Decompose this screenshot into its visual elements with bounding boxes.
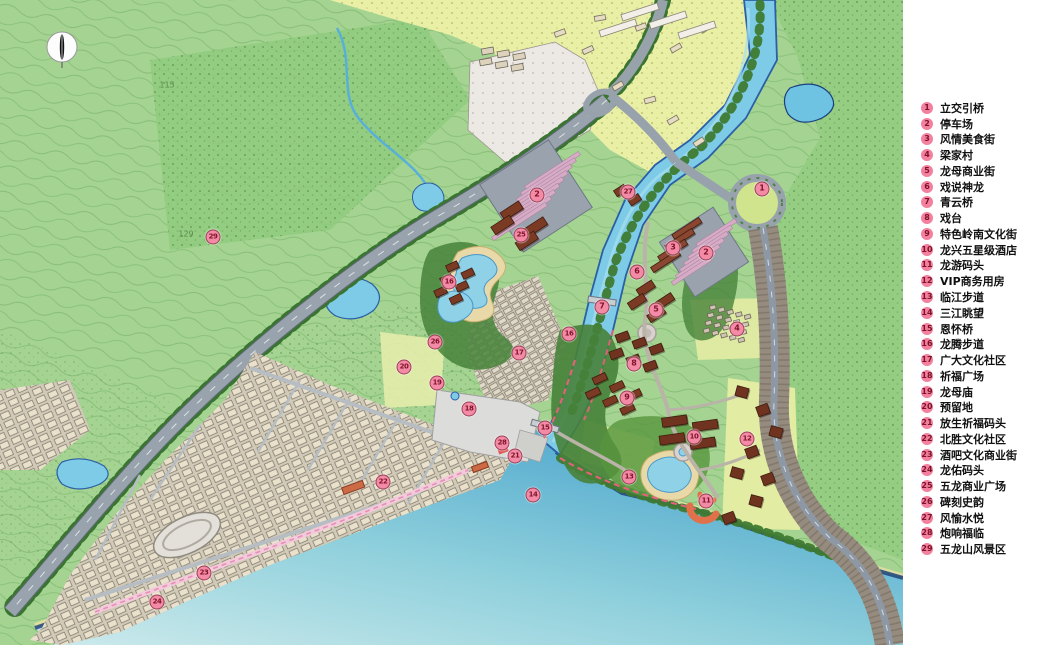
legend-item-number: 14	[921, 307, 933, 319]
map-marker-4: 4	[730, 322, 745, 337]
legend-item: 3风情美食街	[921, 132, 995, 148]
map-marker-2: 2	[530, 188, 545, 203]
legend-item-number: 7	[921, 196, 933, 208]
legend-item-number: 24	[921, 464, 933, 476]
legend-item: 8戏台	[921, 210, 962, 226]
legend-item: 20预留地	[921, 399, 973, 415]
legend-item-number: 5	[921, 165, 933, 177]
legend-item-number: 18	[921, 370, 933, 382]
legend-item-number: 25	[921, 480, 933, 492]
legend-item-label: 碑刻史韵	[940, 494, 984, 510]
map-marker-25: 25	[514, 228, 529, 243]
map-art	[0, 0, 903, 645]
legend-item-number: 15	[921, 323, 933, 335]
legend-item-number: 26	[921, 496, 933, 508]
legend-item-number: 21	[921, 417, 933, 429]
legend-item: 1立交引桥	[921, 100, 984, 116]
legend-item-label: 龙游码头	[940, 257, 984, 273]
contour-label: 129	[178, 230, 193, 239]
map-marker-13: 13	[622, 470, 637, 485]
legend-item-label: 戏台	[940, 210, 962, 226]
legend-item-label: 龙佑码头	[940, 462, 984, 478]
legend-item-number: 4	[921, 149, 933, 161]
legend-item-number: 27	[921, 512, 933, 524]
legend-item-label: 龙腾步道	[940, 336, 984, 352]
map-marker-18: 18	[462, 402, 477, 417]
legend-item: 16龙腾步道	[921, 336, 984, 352]
map-marker-11: 11	[699, 494, 714, 509]
legend-item-label: 梁家村	[940, 147, 973, 163]
legend-item-number: 6	[921, 181, 933, 193]
map-marker-16: 16	[562, 327, 577, 342]
legend-item-number: 8	[921, 212, 933, 224]
legend-item: 25五龙商业广场	[921, 478, 1006, 494]
legend-item-number: 28	[921, 527, 933, 539]
legend-item-number: 17	[921, 354, 933, 366]
legend-item-label: 龙母商业街	[940, 163, 995, 179]
legend-item: 28炮响福临	[921, 526, 984, 542]
legend-item: 26碑刻史韵	[921, 494, 984, 510]
map-marker-3: 3	[666, 241, 681, 256]
map-marker-1: 1	[755, 182, 770, 197]
map-marker-22: 22	[376, 475, 391, 490]
legend-item-number: 23	[921, 449, 933, 461]
legend-item-number: 9	[921, 228, 933, 240]
legend-item-label: 立交引桥	[940, 100, 984, 116]
map-marker-23: 23	[197, 566, 212, 581]
legend-item-label: 预留地	[940, 399, 973, 415]
map-marker-21: 21	[508, 449, 523, 464]
legend-item-label: 特色岭南文化街	[940, 226, 1017, 242]
map-marker-16: 16	[442, 275, 457, 290]
legend-item-label: 龙母庙	[940, 384, 973, 400]
legend-item-number: 11	[921, 259, 933, 271]
map-marker-17: 17	[512, 346, 527, 361]
legend-item-label: 戏说神龙	[940, 179, 984, 195]
legend-item: 5龙母商业街	[921, 163, 995, 179]
legend-item: 15恩怀桥	[921, 321, 973, 337]
contour-label: 115	[159, 81, 174, 90]
legend-item-label: VIP商务用房	[940, 273, 1005, 289]
legend-item-label: 临江步道	[940, 289, 984, 305]
legend-item-label: 龙兴五星级酒店	[940, 242, 1017, 258]
legend-item-number: 20	[921, 401, 933, 413]
map-marker-7: 7	[595, 300, 610, 315]
legend-item: 9特色岭南文化街	[921, 226, 1017, 242]
map-marker-10: 10	[687, 430, 702, 445]
legend-item-number: 16	[921, 338, 933, 350]
master-plan-map: 129115 122345678910111213141516161718192…	[0, 0, 903, 645]
legend-item-number: 29	[921, 543, 933, 555]
legend-item: 23酒吧文化商业街	[921, 447, 1017, 463]
legend-item: 7青云桥	[921, 195, 973, 211]
legend-item-label: 广大文化社区	[940, 352, 1006, 368]
legend-item-label: 放生祈福码头	[940, 415, 1006, 431]
map-marker-14: 14	[526, 488, 541, 503]
map-marker-5: 5	[649, 303, 664, 318]
legend-item-label: 风愉水悦	[940, 510, 984, 526]
legend-item-number: 1	[921, 102, 933, 114]
legend-item: 18祈福广场	[921, 368, 984, 384]
legend-item: 6戏说神龙	[921, 179, 984, 195]
site-plan-page: 129115 122345678910111213141516161718192…	[0, 0, 1050, 645]
legend-item-number: 2	[921, 118, 933, 130]
map-marker-27: 27	[621, 185, 636, 200]
map-marker-6: 6	[630, 265, 645, 280]
legend-item-number: 10	[921, 244, 933, 256]
legend-item-label: 五龙山风景区	[940, 541, 1006, 557]
legend-item: 21放生祈福码头	[921, 415, 1006, 431]
map-marker-20: 20	[397, 360, 412, 375]
legend-item: 14三江眺望	[921, 305, 984, 321]
legend-item: 17广大文化社区	[921, 352, 1006, 368]
legend-item-label: 酒吧文化商业街	[940, 447, 1017, 463]
legend-item: 2停车场	[921, 116, 973, 132]
legend-item-number: 12	[921, 275, 933, 287]
legend-item: 24龙佑码头	[921, 462, 984, 478]
legend-item-label: 停车场	[940, 116, 973, 132]
legend-item: 10龙兴五星级酒店	[921, 242, 1017, 258]
legend-item-label: 五龙商业广场	[940, 478, 1006, 494]
map-marker-12: 12	[740, 432, 755, 447]
map-marker-15: 15	[538, 421, 553, 436]
legend-item-number: 22	[921, 433, 933, 445]
legend-item: 4梁家村	[921, 147, 973, 163]
map-marker-8: 8	[627, 357, 642, 372]
legend-item: 13临江步道	[921, 289, 984, 305]
legend-item-number: 3	[921, 133, 933, 145]
legend-item: 11龙游码头	[921, 258, 984, 274]
legend-item-number: 19	[921, 386, 933, 398]
legend-item-label: 祈福广场	[940, 368, 984, 384]
legend-item-label: 风情美食街	[940, 131, 995, 147]
map-marker-28: 28	[495, 436, 510, 451]
map-marker-26: 26	[428, 335, 443, 350]
map-marker-9: 9	[620, 391, 635, 406]
legend-item: 19龙母庙	[921, 384, 973, 400]
map-marker-29: 29	[206, 230, 221, 245]
legend-item-label: 三江眺望	[940, 305, 984, 321]
legend-item: 27风愉水悦	[921, 510, 984, 526]
map-marker-19: 19	[430, 376, 445, 391]
legend-item-label: 青云桥	[940, 194, 973, 210]
legend-item: 22北胜文化社区	[921, 431, 1006, 447]
legend-item-label: 炮响福临	[940, 525, 984, 541]
map-marker-24: 24	[150, 595, 165, 610]
legend-item: 29五龙山风景区	[921, 541, 1006, 557]
legend-item-number: 13	[921, 291, 933, 303]
legend-item-label: 恩怀桥	[940, 321, 973, 337]
map-marker-2: 2	[699, 246, 714, 261]
legend-item: 12VIP商务用房	[921, 273, 1005, 289]
legend-item-label: 北胜文化社区	[940, 431, 1006, 447]
